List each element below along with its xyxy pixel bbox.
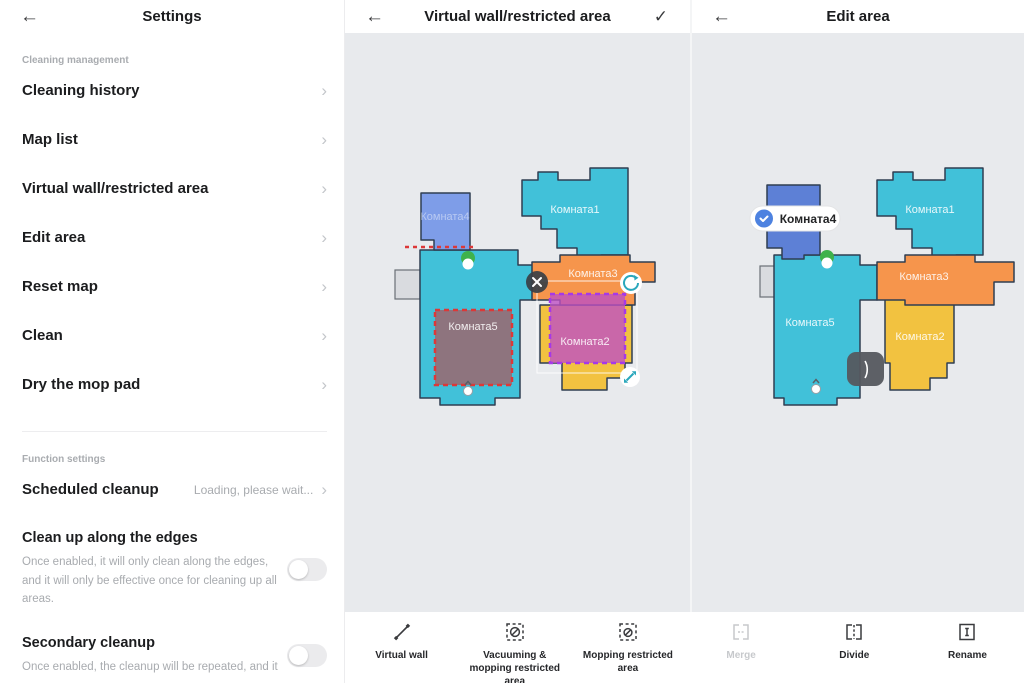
chevron-right-icon: ›: [321, 480, 327, 500]
chevron-right-icon: ›: [321, 277, 327, 297]
app-root: ← Settings Cleaning management Cleaning …: [0, 0, 1024, 683]
chevron-right-icon: ›: [321, 179, 327, 199]
virtual-wall-icon: [390, 620, 414, 644]
tool-divide[interactable]: Divide: [798, 620, 911, 662]
setting-secondary-cleanup: Secondary cleanup Once enabled, the clea…: [22, 635, 327, 677]
sidebar-item-reset-map[interactable]: Reset map ›: [22, 262, 327, 311]
chevron-right-icon: ›: [321, 130, 327, 150]
room-label-komnata2: Комната2: [895, 331, 944, 343]
room-label-komnata3: Комната3: [899, 271, 948, 283]
page-title: Settings: [0, 8, 344, 25]
tool-rename[interactable]: Rename: [911, 620, 1024, 662]
settings-list: Cleaning management Cleaning history › M…: [0, 55, 344, 677]
room-label-komnata1: Комната1: [905, 204, 954, 216]
delete-zone-button[interactable]: [526, 271, 548, 293]
room-label-komnata1: Комната1: [550, 204, 599, 216]
room-label-komnata5: Комната5: [785, 317, 834, 329]
check-circle-icon: [755, 210, 773, 228]
selected-room-label: Комната4: [780, 212, 837, 226]
page-title: Virtual wall/restricted area: [345, 8, 690, 25]
edit-area-header: ← Edit area: [692, 0, 1024, 33]
loading-status: Loading, please wait...: [194, 483, 313, 497]
sidebar-item-clean[interactable]: Clean ›: [22, 311, 327, 360]
settings-header: ← Settings: [0, 0, 344, 33]
tool-virtual-wall[interactable]: Virtual wall: [345, 620, 458, 662]
secondary-toggle[interactable]: [287, 644, 327, 667]
sidebar-item-edit-area[interactable]: Edit area ›: [22, 213, 327, 262]
rename-icon: [955, 620, 979, 644]
virtual-wall-map[interactable]: Комната4 Комната1 Комната3 Комната5 Комн…: [345, 33, 690, 612]
tool-mopping-restricted[interactable]: Mopping restricted area: [571, 620, 684, 675]
chevron-right-icon: ›: [321, 326, 327, 346]
obstacle-icon[interactable]: [847, 352, 884, 386]
room-label-komnata3: Комната3: [568, 268, 617, 280]
divide-icon: [842, 620, 866, 644]
rotate-zone-button[interactable]: [620, 272, 642, 294]
mopping-restricted-zone[interactable]: [550, 294, 625, 363]
room-komnata2[interactable]: [885, 298, 954, 390]
setting-title: Secondary cleanup: [22, 635, 287, 651]
edges-toggle[interactable]: [287, 558, 327, 581]
toggle-knob: [289, 646, 308, 665]
chevron-right-icon: ›: [321, 375, 327, 395]
setting-clean-edges: Clean up along the edges Once enabled, i…: [22, 530, 327, 609]
toggle-knob: [289, 560, 308, 579]
sidebar-item-virtual-wall[interactable]: Virtual wall/restricted area ›: [22, 164, 327, 213]
edit-area-map[interactable]: Комната4 Комната1 Комната3 Комната5 Комн…: [692, 33, 1024, 612]
virtual-wall-panel: ← Virtual wall/restricted area ✓: [345, 0, 690, 683]
edit-area-panel: ← Edit area: [690, 0, 1024, 683]
chevron-right-icon: ›: [321, 228, 327, 248]
room-label-komnata5: Комната5: [448, 321, 497, 333]
map-toolbar: Virtual wall Vacuuming & mopping restric…: [345, 612, 1024, 683]
resize-zone-button[interactable]: [620, 367, 640, 387]
mopping-restricted-icon: [616, 620, 640, 644]
selected-room-pill[interactable]: Комната4: [750, 206, 840, 231]
page-title: Edit area: [692, 8, 1024, 25]
virtual-wall-header: ← Virtual wall/restricted area ✓: [345, 0, 690, 33]
divider: [22, 431, 327, 432]
vacuum-mop-restricted-icon: [503, 620, 527, 644]
settings-panel: ← Settings Cleaning management Cleaning …: [0, 0, 345, 683]
merge-icon: [729, 620, 753, 644]
map-alcove: [395, 270, 420, 299]
setting-title: Clean up along the edges: [22, 530, 287, 546]
section-label-cleaning: Cleaning management: [22, 55, 327, 66]
sidebar-item-cleaning-history[interactable]: Cleaning history ›: [22, 66, 327, 115]
room-label-komnata4: Комната4: [420, 211, 469, 223]
tool-merge: Merge: [685, 620, 798, 662]
sidebar-item-scheduled-cleanup[interactable]: Scheduled cleanup Loading, please wait..…: [22, 465, 327, 514]
tool-vacuum-mop-restricted[interactable]: Vacuuming & mopping restricted area: [458, 620, 571, 683]
section-label-function: Function settings: [22, 454, 327, 465]
chevron-right-icon: ›: [321, 81, 327, 101]
sidebar-item-dry-mop-pad[interactable]: Dry the mop pad ›: [22, 360, 327, 409]
room-label-komnata2: Комната2: [560, 336, 609, 348]
setting-description: Once enabled, it will only clean along t…: [22, 553, 287, 609]
sidebar-item-map-list[interactable]: Map list ›: [22, 115, 327, 164]
setting-description: Once enabled, the cleanup will be repeat…: [22, 658, 287, 677]
confirm-check-icon[interactable]: ✓: [654, 7, 668, 27]
